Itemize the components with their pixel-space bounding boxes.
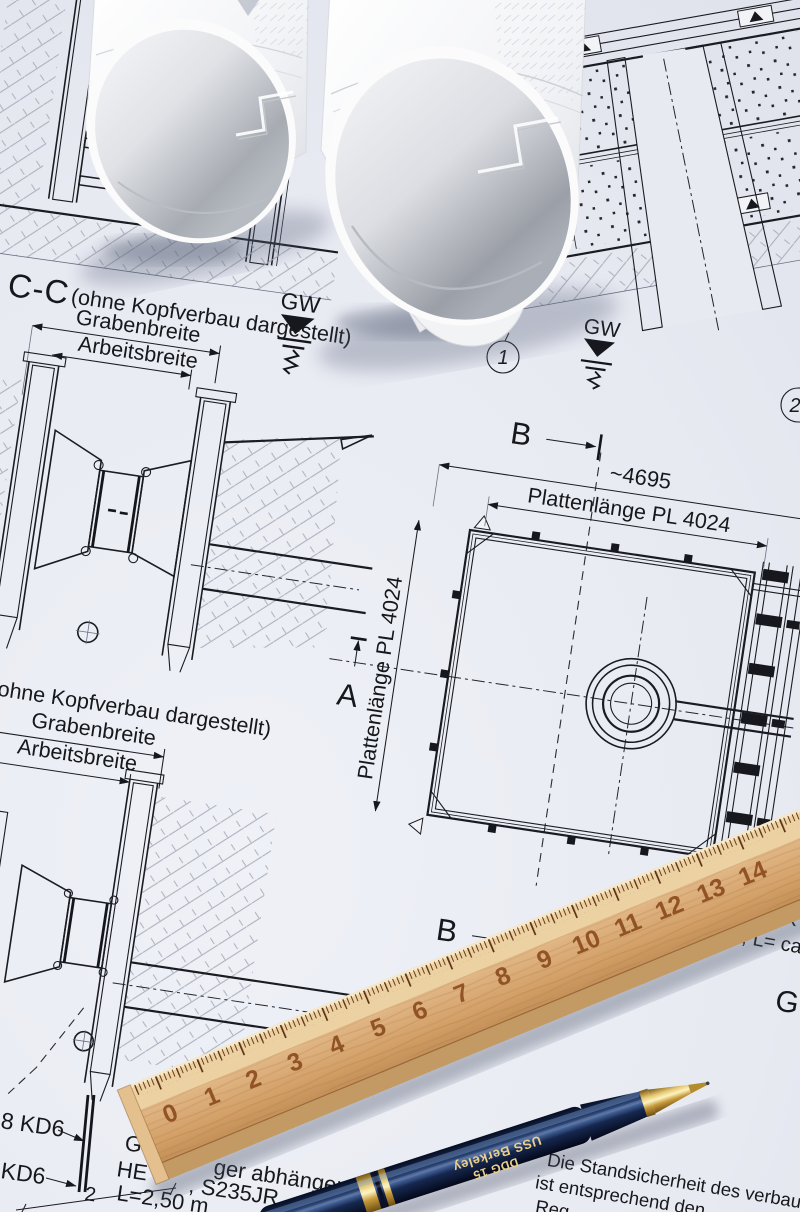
note-fragment: G <box>773 984 800 1021</box>
svg-text:A: A <box>335 676 361 714</box>
section-marker-a: A <box>335 637 367 714</box>
gw-label: GW <box>279 287 322 318</box>
frame-clamps <box>418 521 692 856</box>
drawing-cc-trench <box>0 348 396 701</box>
kd6-label-b: KD6 <box>0 1157 47 1189</box>
section-marker-b-top: B <box>508 415 602 463</box>
callout-number: 2 <box>788 395 800 417</box>
callout-2: 2 <box>781 388 800 422</box>
dim-plate-top: Plattenlänge PL 4024 <box>526 483 732 537</box>
corner-flag-icon <box>408 816 423 834</box>
photo-canvas: C-C (ohne Kopfverbau dargestellt) Graben… <box>0 0 800 1212</box>
svg-text:B: B <box>434 912 460 950</box>
section-title: C-C <box>6 266 72 312</box>
note-line: Reg <box>534 1196 571 1212</box>
dim-overall: ~4695 <box>608 460 673 494</box>
dim-2-label: 2 <box>83 1183 97 1206</box>
dim-plate-left: Plattenlänge PL 4024 <box>353 575 407 781</box>
blueprint-scene: C-C (ohne Kopfverbau dargestellt) Graben… <box>0 0 800 1212</box>
corner-flag-icon <box>474 515 492 530</box>
kd6-label-a: 8 KD6 <box>0 1107 66 1142</box>
svg-text:B: B <box>508 415 534 453</box>
